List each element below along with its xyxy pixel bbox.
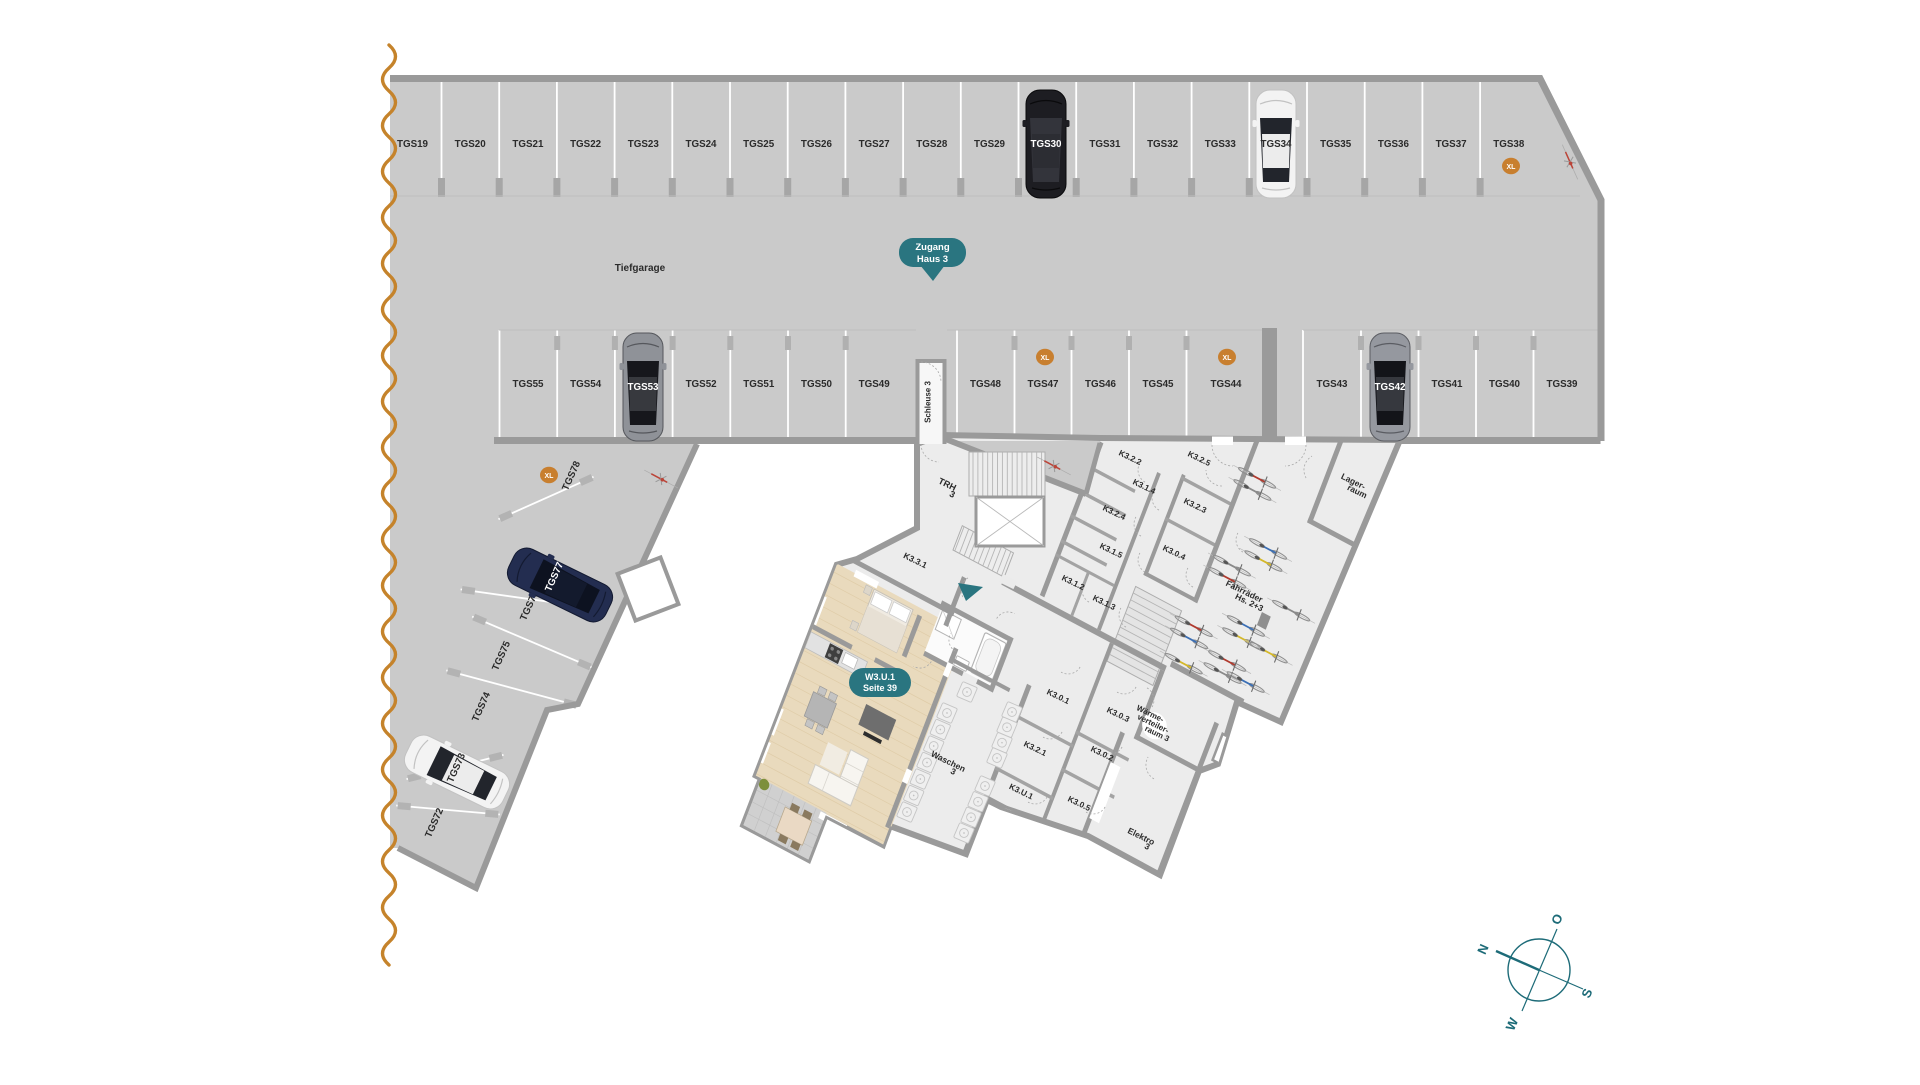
svg-text:Haus 3: Haus 3 (917, 254, 948, 265)
svg-text:TGS23: TGS23 (628, 139, 660, 150)
svg-text:TGS30: TGS30 (1030, 139, 1062, 150)
svg-text:TGS24: TGS24 (685, 139, 717, 150)
svg-text:TGS42: TGS42 (1374, 382, 1406, 393)
svg-text:TGS51: TGS51 (743, 379, 775, 390)
svg-text:TGS55: TGS55 (512, 379, 544, 390)
svg-text:TGS43: TGS43 (1316, 379, 1348, 390)
svg-text:XL: XL (545, 473, 555, 480)
svg-text:TGS33: TGS33 (1205, 139, 1237, 150)
svg-text:Schleuse 3: Schleuse 3 (924, 381, 933, 423)
svg-text:Zugang: Zugang (915, 242, 949, 253)
svg-text:TGS20: TGS20 (455, 139, 487, 150)
svg-text:TGS54: TGS54 (570, 379, 602, 390)
svg-text:TGS37: TGS37 (1436, 139, 1468, 150)
svg-text:XL: XL (1223, 355, 1233, 362)
svg-text:TGS28: TGS28 (916, 139, 948, 150)
svg-text:TGS19: TGS19 (397, 139, 429, 150)
svg-text:TGS25: TGS25 (743, 139, 775, 150)
svg-text:TGS39: TGS39 (1546, 379, 1578, 390)
svg-text:TGS45: TGS45 (1142, 379, 1174, 390)
svg-text:XL: XL (1041, 355, 1051, 362)
svg-text:TGS22: TGS22 (570, 139, 602, 150)
svg-text:TGS35: TGS35 (1320, 139, 1352, 150)
svg-text:TGS52: TGS52 (686, 379, 718, 390)
svg-text:XL: XL (1507, 164, 1517, 171)
svg-text:TGS38: TGS38 (1493, 139, 1525, 150)
svg-text:TGS27: TGS27 (859, 139, 891, 150)
svg-text:TGS50: TGS50 (801, 379, 833, 390)
svg-text:TGS36: TGS36 (1378, 139, 1410, 150)
svg-text:TGS21: TGS21 (512, 139, 544, 150)
svg-text:TGS29: TGS29 (974, 139, 1006, 150)
svg-text:TGS26: TGS26 (801, 139, 833, 150)
svg-text:Tiefgarage: Tiefgarage (615, 263, 666, 274)
svg-text:Seite 39: Seite 39 (863, 683, 897, 693)
svg-text:TGS41: TGS41 (1431, 379, 1463, 390)
svg-text:TGS34: TGS34 (1260, 139, 1292, 150)
svg-text:TGS31: TGS31 (1089, 139, 1121, 150)
svg-text:TGS53: TGS53 (627, 382, 659, 393)
svg-text:W3.U.1: W3.U.1 (865, 672, 895, 682)
svg-text:TGS44: TGS44 (1210, 379, 1242, 390)
svg-text:TGS40: TGS40 (1489, 379, 1521, 390)
svg-text:TGS47: TGS47 (1027, 379, 1059, 390)
svg-text:TGS49: TGS49 (859, 379, 891, 390)
svg-text:TGS48: TGS48 (970, 379, 1002, 390)
svg-text:TGS46: TGS46 (1085, 379, 1117, 390)
svg-text:TGS32: TGS32 (1147, 139, 1179, 150)
